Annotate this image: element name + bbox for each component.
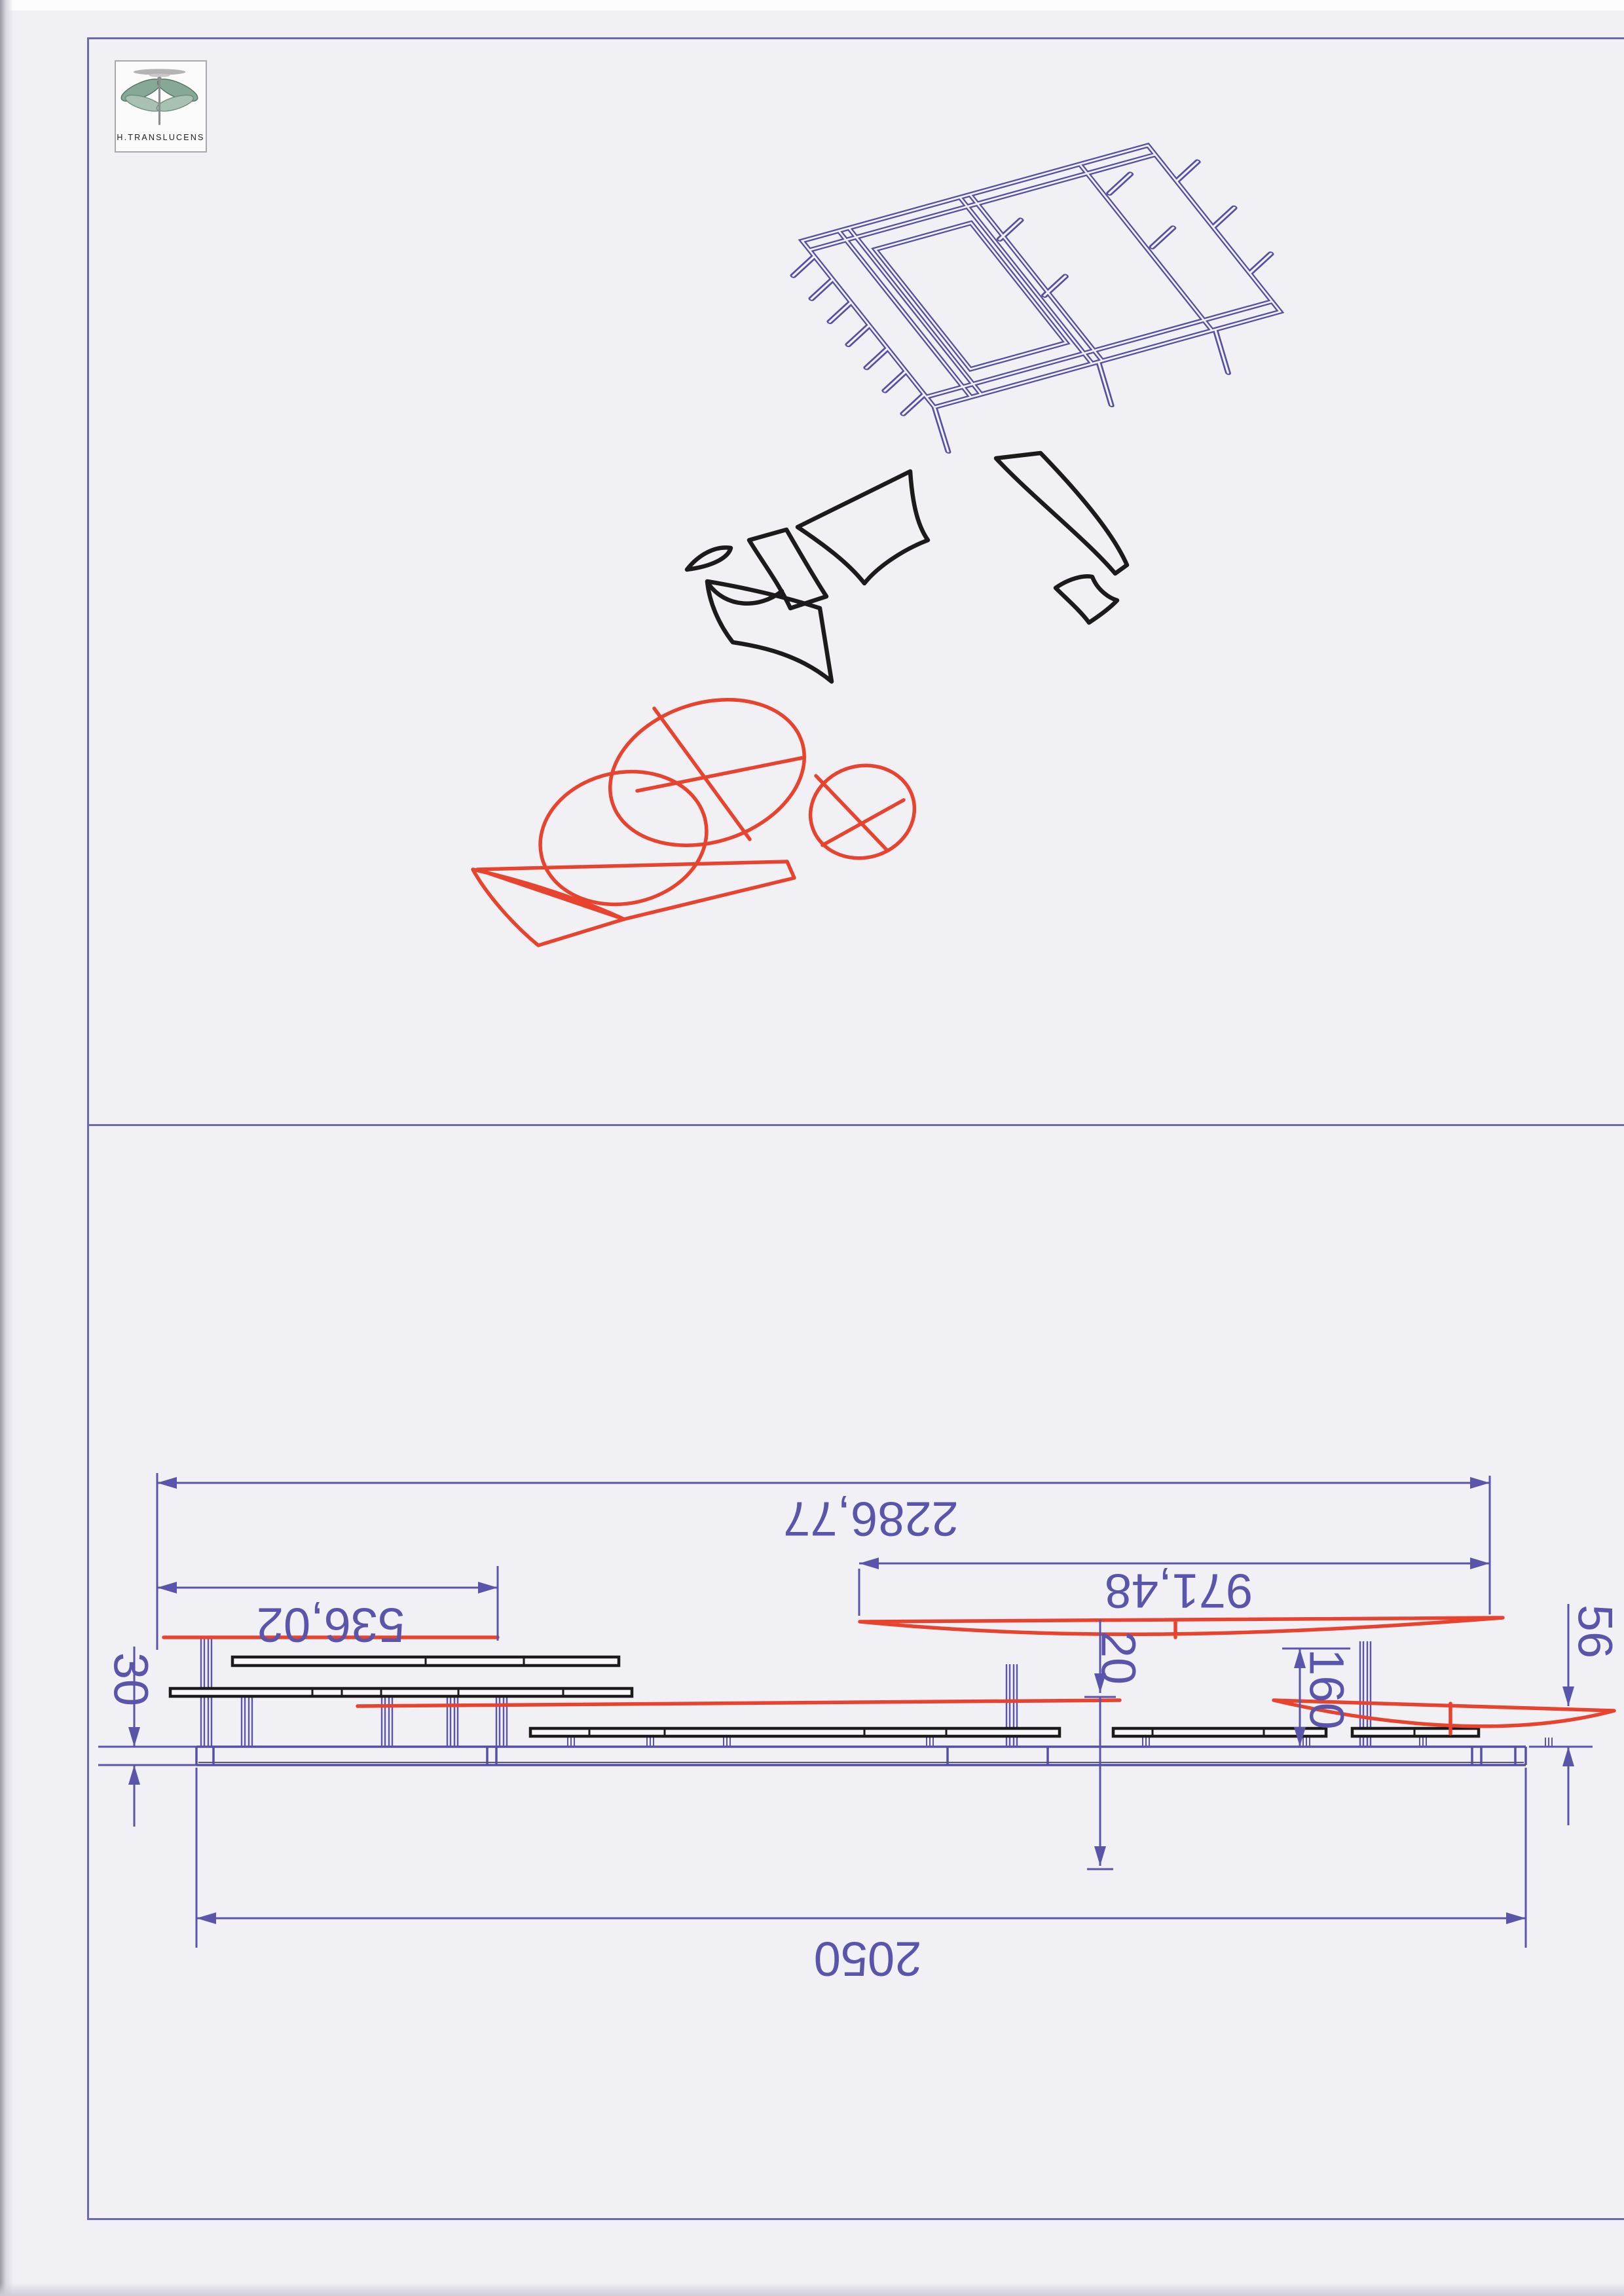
scanner-edge-bottom xyxy=(0,2283,1624,2296)
dim-total-width: 2286,77 xyxy=(783,1491,959,1547)
sheet-divider xyxy=(87,1124,1624,1126)
fin-sail xyxy=(473,869,624,945)
canopy-chord xyxy=(637,757,804,791)
canopy-chord xyxy=(816,776,887,850)
plank-sections xyxy=(170,1657,1479,1736)
pattern-piece xyxy=(996,453,1127,574)
scanned-drawing-sheet: H.TRANSLUCENS xyxy=(0,0,1624,2296)
dim-canopy-height: 160 xyxy=(1299,1649,1355,1729)
dim-right-offset: 56 xyxy=(1568,1605,1623,1658)
base-plank xyxy=(477,862,794,919)
scanner-edge-left xyxy=(0,0,13,2296)
sheet-border-top xyxy=(87,37,1624,39)
scanner-edge-top xyxy=(0,0,1624,10)
dim-right-span: 971,48 xyxy=(1105,1563,1253,1619)
dim-gap: 20 xyxy=(1091,1631,1147,1685)
canopy-wireframe-drawing xyxy=(445,687,943,982)
pattern-piece xyxy=(1056,576,1117,623)
company-logo: H.TRANSLUCENS xyxy=(115,60,207,153)
dim-platform-width: 2050 xyxy=(814,1931,922,1987)
pattern-pieces-drawing xyxy=(655,439,1153,701)
dragonfly-icon xyxy=(116,67,203,126)
canopy-chord xyxy=(822,800,904,845)
logo-label: H.TRANSLUCENS xyxy=(116,133,206,142)
canopy-chord xyxy=(654,708,750,839)
sheet-border-bottom xyxy=(87,2218,1624,2220)
dim-platform-thickness: 30 xyxy=(103,1652,159,1706)
canopy-ellipse xyxy=(800,754,925,870)
dim-left-span: 536,02 xyxy=(257,1597,405,1653)
pattern-piece xyxy=(687,547,731,570)
pattern-piece xyxy=(707,581,832,682)
pattern-piece xyxy=(798,471,928,583)
